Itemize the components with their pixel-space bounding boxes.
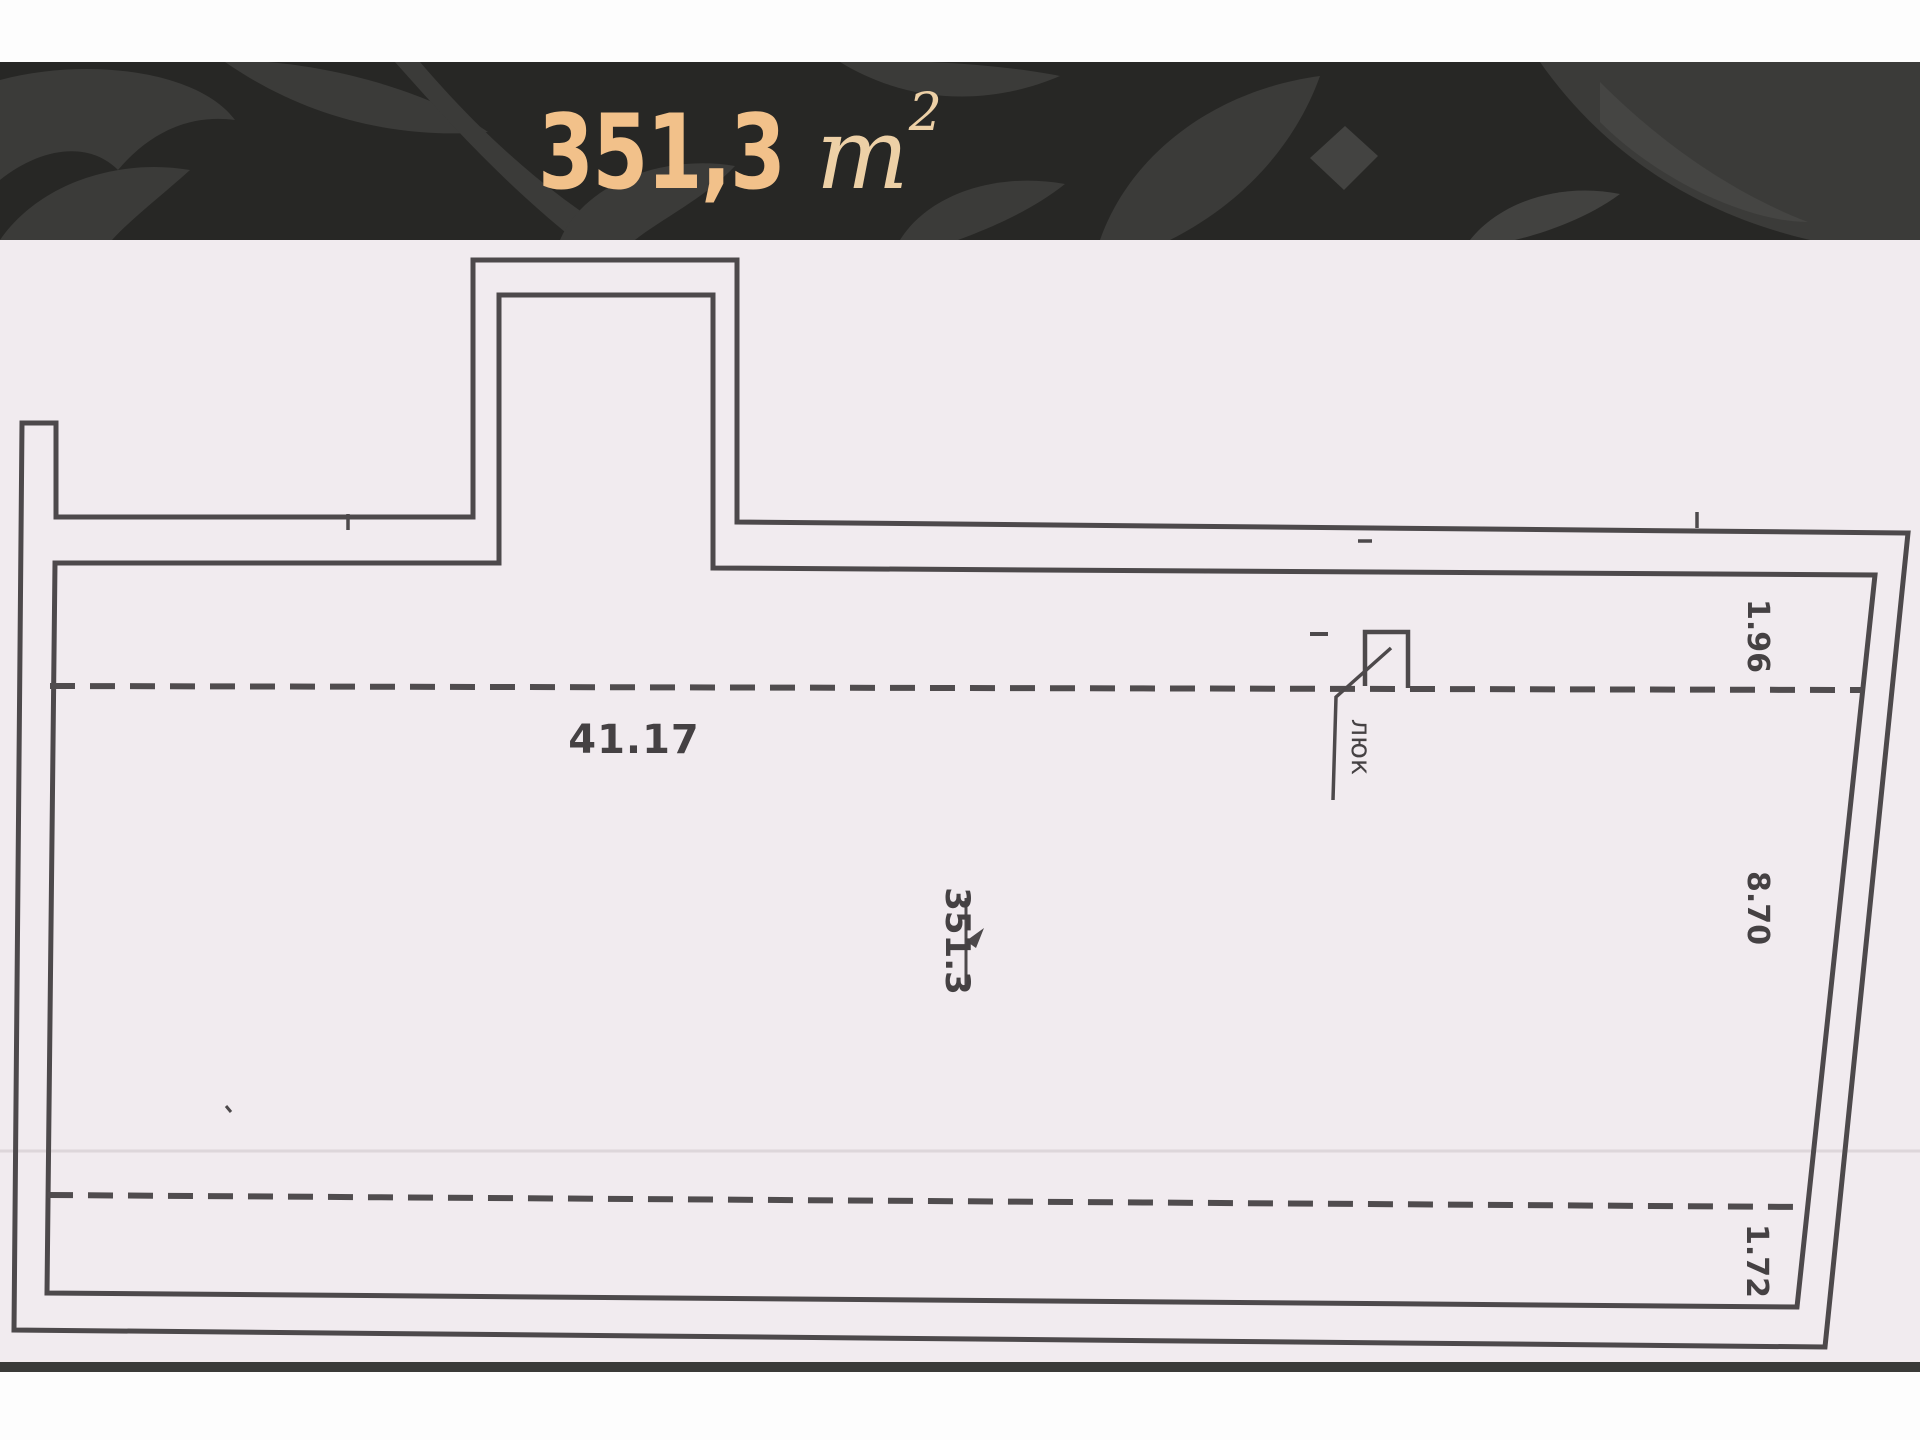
unit-base: m [816, 98, 909, 212]
top-white-strip [0, 0, 1920, 62]
label-right-lower: 1.72 [1739, 1224, 1774, 1298]
label-area: 351.3 [937, 887, 977, 995]
label-right-upper: 1.96 [1740, 599, 1775, 673]
bottom-border-line [0, 1362, 1920, 1372]
screenshot-root: 351,3 m2 [0, 0, 1920, 1440]
damask-ornament [0, 62, 1920, 240]
damask-leaves [0, 62, 1920, 240]
label-top-length: 41.17 [568, 717, 700, 763]
unit-exponent: 2 [909, 83, 942, 143]
label-hatch: люк [1345, 719, 1376, 775]
area-value: 351,3 [538, 84, 784, 223]
plan-paper [0, 240, 1920, 1362]
label-right-middle: 8.70 [1740, 871, 1775, 945]
area-unit: m2 [816, 87, 942, 204]
floor-plan: 41.17 351.3 люк 1.96 8.70 1.72 [0, 240, 1920, 1440]
header-band: 351,3 m2 [0, 62, 1920, 240]
area-title: 351,3 m2 [538, 84, 942, 223]
